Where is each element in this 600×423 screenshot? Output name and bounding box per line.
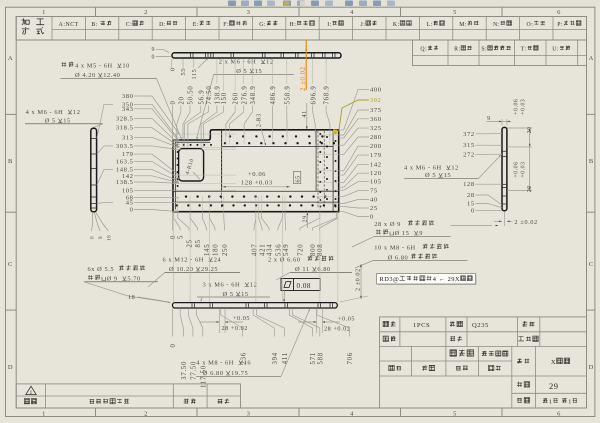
svg-text:10 x M8 - 6H: 10 x M8 - 6H bbox=[374, 245, 415, 252]
svg-text:O:: O: bbox=[527, 22, 534, 28]
svg-text:250: 250 bbox=[222, 244, 229, 256]
svg-text:179: 179 bbox=[370, 152, 382, 159]
svg-text:I:: I: bbox=[327, 22, 332, 28]
svg-text:Ø 10.20: Ø 10.20 bbox=[169, 266, 193, 273]
svg-text:B: B bbox=[589, 158, 594, 165]
svg-text:260: 260 bbox=[233, 92, 240, 104]
svg-text:200: 200 bbox=[370, 143, 382, 150]
svg-text:+0.03: +0.03 bbox=[521, 99, 527, 115]
svg-text:9: 9 bbox=[419, 230, 423, 237]
svg-text:0: 0 bbox=[130, 207, 134, 214]
svg-text:6x Ø 5.5: 6x Ø 5.5 bbox=[88, 266, 115, 273]
svg-text:Q:: Q: bbox=[420, 47, 427, 53]
svg-text:0: 0 bbox=[170, 100, 177, 104]
svg-text:25: 25 bbox=[370, 205, 378, 212]
svg-text:+0.06: +0.06 bbox=[514, 99, 520, 115]
svg-text:360: 360 bbox=[370, 116, 382, 123]
svg-text:75: 75 bbox=[370, 188, 378, 195]
svg-text:G:: G: bbox=[259, 22, 266, 28]
svg-text:Ø 5: Ø 5 bbox=[236, 68, 247, 75]
svg-text:18: 18 bbox=[128, 294, 135, 301]
svg-text:9: 9 bbox=[98, 236, 104, 239]
svg-text:4 ← 29X: 4 ← 29X bbox=[433, 276, 460, 283]
svg-text:2: 2 bbox=[144, 410, 148, 417]
svg-text:808: 808 bbox=[317, 244, 324, 256]
svg-text:0: 0 bbox=[471, 207, 475, 214]
svg-text:C: C bbox=[589, 261, 594, 268]
svg-text:5: 5 bbox=[178, 235, 185, 239]
svg-text:392: 392 bbox=[370, 97, 381, 104]
svg-text:407: 407 bbox=[252, 244, 259, 256]
svg-text:2 ±0.02: 2 ±0.02 bbox=[300, 66, 307, 91]
svg-text:A:NCT: A:NCT bbox=[59, 22, 79, 28]
svg-text:2 ±0.02: 2 ±0.02 bbox=[354, 268, 361, 291]
svg-text:4: 4 bbox=[350, 9, 354, 16]
svg-text:5.70: 5.70 bbox=[127, 276, 140, 283]
svg-text:9: 9 bbox=[487, 115, 491, 122]
svg-text:20: 20 bbox=[527, 185, 533, 192]
svg-text:2 ±0.02: 2 ±0.02 bbox=[514, 219, 537, 226]
svg-text:5: 5 bbox=[453, 9, 457, 16]
svg-text:394: 394 bbox=[272, 352, 279, 364]
svg-text:315: 315 bbox=[463, 142, 475, 149]
svg-text:9: 9 bbox=[152, 47, 155, 53]
svg-text:179: 179 bbox=[122, 151, 134, 158]
svg-text:19.75: 19.75 bbox=[231, 370, 248, 377]
svg-text:180: 180 bbox=[213, 244, 220, 256]
svg-text:421: 421 bbox=[260, 244, 267, 256]
svg-text:115: 115 bbox=[191, 69, 198, 80]
svg-text:40: 40 bbox=[370, 197, 378, 204]
svg-text:0: 0 bbox=[370, 214, 374, 221]
svg-text:1PCS: 1PCS bbox=[413, 322, 430, 329]
svg-text:D: D bbox=[589, 364, 594, 371]
svg-text:Ø 6.80: Ø 6.80 bbox=[203, 370, 224, 377]
svg-text:138.5: 138.5 bbox=[116, 179, 134, 186]
svg-text:B: B bbox=[8, 158, 13, 165]
svg-text:10: 10 bbox=[122, 63, 129, 70]
svg-text:313: 313 bbox=[122, 134, 134, 141]
svg-text:J:: J: bbox=[361, 22, 366, 28]
svg-text:706: 706 bbox=[347, 352, 354, 364]
svg-text:RD3@: RD3@ bbox=[380, 276, 400, 283]
svg-text:X: X bbox=[551, 359, 556, 366]
svg-text:1: 1 bbox=[549, 399, 553, 406]
svg-text:2: 2 bbox=[144, 9, 148, 16]
svg-text:D:: D: bbox=[159, 22, 166, 28]
svg-text:325: 325 bbox=[370, 125, 382, 132]
svg-text:L:: L: bbox=[427, 22, 433, 28]
svg-text:142: 142 bbox=[370, 161, 382, 168]
svg-text:348.9: 348.9 bbox=[250, 85, 257, 104]
svg-text:1: 1 bbox=[30, 390, 33, 396]
svg-text:3 x M6 - 6H: 3 x M6 - 6H bbox=[203, 282, 241, 289]
svg-text:15: 15 bbox=[255, 68, 262, 75]
svg-text:U:: U: bbox=[552, 47, 559, 53]
svg-text:343: 343 bbox=[122, 106, 134, 113]
svg-text:434: 434 bbox=[267, 244, 274, 256]
svg-text:D: D bbox=[8, 364, 13, 371]
svg-text:150: 150 bbox=[221, 92, 228, 104]
svg-text:12: 12 bbox=[451, 165, 459, 172]
svg-text:272: 272 bbox=[463, 151, 475, 158]
svg-text:56.9: 56.9 bbox=[198, 90, 205, 105]
svg-text:T:: T: bbox=[521, 47, 527, 53]
svg-text:588: 588 bbox=[317, 352, 324, 364]
svg-text:55: 55 bbox=[180, 68, 187, 75]
svg-text:0: 0 bbox=[90, 236, 96, 239]
svg-text:4 x M5 - 6H: 4 x M5 - 6H bbox=[75, 63, 113, 70]
svg-text:12: 12 bbox=[250, 282, 258, 289]
svg-text:0.08: 0.08 bbox=[297, 282, 311, 290]
svg-text:0: 0 bbox=[170, 343, 177, 347]
svg-text:37.50: 37.50 bbox=[181, 361, 188, 380]
svg-text:Ø 4.20: Ø 4.20 bbox=[75, 72, 96, 79]
svg-text:A: A bbox=[8, 55, 13, 62]
svg-text:12: 12 bbox=[73, 109, 81, 116]
svg-text:B:: B: bbox=[91, 22, 98, 28]
svg-text:Ø 11: Ø 11 bbox=[295, 266, 310, 273]
svg-text:3: 3 bbox=[247, 410, 251, 417]
svg-text:6: 6 bbox=[557, 410, 561, 417]
svg-text:C: C bbox=[8, 261, 13, 268]
svg-text:2 x M6 - 6H: 2 x M6 - 6H bbox=[219, 59, 257, 66]
svg-text:20: 20 bbox=[178, 96, 185, 104]
svg-text:6.80: 6.80 bbox=[317, 266, 330, 273]
svg-text:372: 372 bbox=[463, 131, 475, 138]
svg-text:328.5: 328.5 bbox=[116, 115, 134, 122]
svg-text:28 +0.02: 28 +0.02 bbox=[222, 325, 248, 332]
svg-text:Ø 9: Ø 9 bbox=[107, 276, 118, 283]
svg-text:20: 20 bbox=[527, 126, 533, 133]
svg-text:558.9: 558.9 bbox=[284, 85, 291, 104]
svg-text:+0.06: +0.06 bbox=[514, 161, 520, 177]
svg-text:6 x M12 - 6H: 6 x M12 - 6H bbox=[163, 257, 204, 264]
svg-text:74.50: 74.50 bbox=[206, 85, 213, 104]
svg-text:400: 400 bbox=[370, 87, 382, 94]
svg-text:C:: C: bbox=[126, 22, 133, 28]
svg-text:28 x Ø 9: 28 x Ø 9 bbox=[374, 221, 401, 228]
svg-text:85: 85 bbox=[195, 239, 202, 247]
svg-text:+0.05: +0.05 bbox=[338, 316, 355, 323]
svg-text:2-R3: 2-R3 bbox=[256, 113, 262, 127]
svg-text:276.9: 276.9 bbox=[241, 85, 248, 104]
svg-text:380: 380 bbox=[122, 93, 134, 100]
svg-text:K:: K: bbox=[393, 22, 400, 28]
svg-text:4 x M8 - 6H: 4 x M8 - 6H bbox=[196, 360, 234, 367]
svg-text:375: 375 bbox=[370, 107, 382, 114]
svg-text:486.9: 486.9 bbox=[270, 85, 277, 104]
svg-text:M:: M: bbox=[459, 22, 467, 28]
svg-text:5: 5 bbox=[453, 410, 457, 417]
svg-text:F:: F: bbox=[223, 22, 229, 28]
svg-text:318.5: 318.5 bbox=[116, 125, 134, 132]
svg-text:549: 549 bbox=[283, 244, 290, 256]
svg-text:2 x Ø 6.60: 2 x Ø 6.60 bbox=[268, 257, 300, 264]
svg-text:65: 65 bbox=[295, 175, 302, 182]
svg-text:Ø 15: Ø 15 bbox=[395, 230, 410, 237]
svg-text:P:: P: bbox=[557, 22, 563, 28]
svg-text:800: 800 bbox=[310, 244, 317, 256]
svg-text:16: 16 bbox=[244, 360, 252, 367]
svg-text:145: 145 bbox=[204, 244, 211, 256]
svg-text:411: 411 bbox=[282, 352, 289, 364]
svg-text:28: 28 bbox=[467, 192, 475, 199]
svg-text:696.9: 696.9 bbox=[310, 85, 317, 104]
svg-text:163.5: 163.5 bbox=[116, 158, 134, 165]
svg-text:A: A bbox=[589, 55, 594, 62]
svg-text:720: 720 bbox=[298, 244, 305, 256]
svg-text:280: 280 bbox=[370, 134, 382, 141]
svg-text:29: 29 bbox=[549, 381, 559, 391]
svg-text:105: 105 bbox=[370, 179, 382, 186]
svg-text:+0.03: +0.03 bbox=[521, 161, 527, 177]
svg-text:18: 18 bbox=[107, 235, 113, 241]
svg-text:768.9: 768.9 bbox=[324, 85, 331, 104]
svg-text:128: 128 bbox=[463, 181, 475, 188]
svg-text:+0.06: +0.06 bbox=[248, 171, 266, 178]
svg-text:H:: H: bbox=[290, 22, 297, 28]
svg-text:536: 536 bbox=[276, 244, 283, 256]
svg-text:24: 24 bbox=[214, 257, 222, 264]
svg-text:128 +0.03: 128 +0.03 bbox=[241, 180, 273, 187]
svg-text:303.5: 303.5 bbox=[116, 143, 134, 150]
svg-text:28 +0.02: 28 +0.02 bbox=[324, 326, 350, 333]
svg-text:1: 1 bbox=[568, 399, 572, 406]
svg-text:6: 6 bbox=[557, 9, 561, 16]
svg-text:R:: R: bbox=[454, 47, 461, 53]
svg-text:+0.05: +0.05 bbox=[233, 315, 250, 322]
svg-text:0: 0 bbox=[152, 55, 155, 61]
svg-text:N:: N: bbox=[493, 22, 500, 28]
svg-text:Q235: Q235 bbox=[472, 322, 489, 329]
svg-text:571: 571 bbox=[310, 352, 317, 364]
svg-text:E:: E: bbox=[193, 22, 199, 28]
svg-text:1: 1 bbox=[42, 9, 46, 16]
svg-text:S:: S: bbox=[481, 47, 487, 53]
svg-text:3: 3 bbox=[247, 9, 251, 16]
svg-text:50.50: 50.50 bbox=[188, 85, 195, 104]
svg-text:4 x M6 - 6H: 4 x M6 - 6H bbox=[26, 109, 64, 116]
svg-text:4: 4 bbox=[350, 410, 354, 417]
svg-text:0: 0 bbox=[169, 67, 176, 71]
svg-text:4 x M6 - 6H: 4 x M6 - 6H bbox=[404, 165, 442, 172]
svg-text:1: 1 bbox=[42, 410, 46, 417]
svg-text:12.40: 12.40 bbox=[103, 72, 120, 79]
svg-text:120: 120 bbox=[370, 170, 382, 177]
